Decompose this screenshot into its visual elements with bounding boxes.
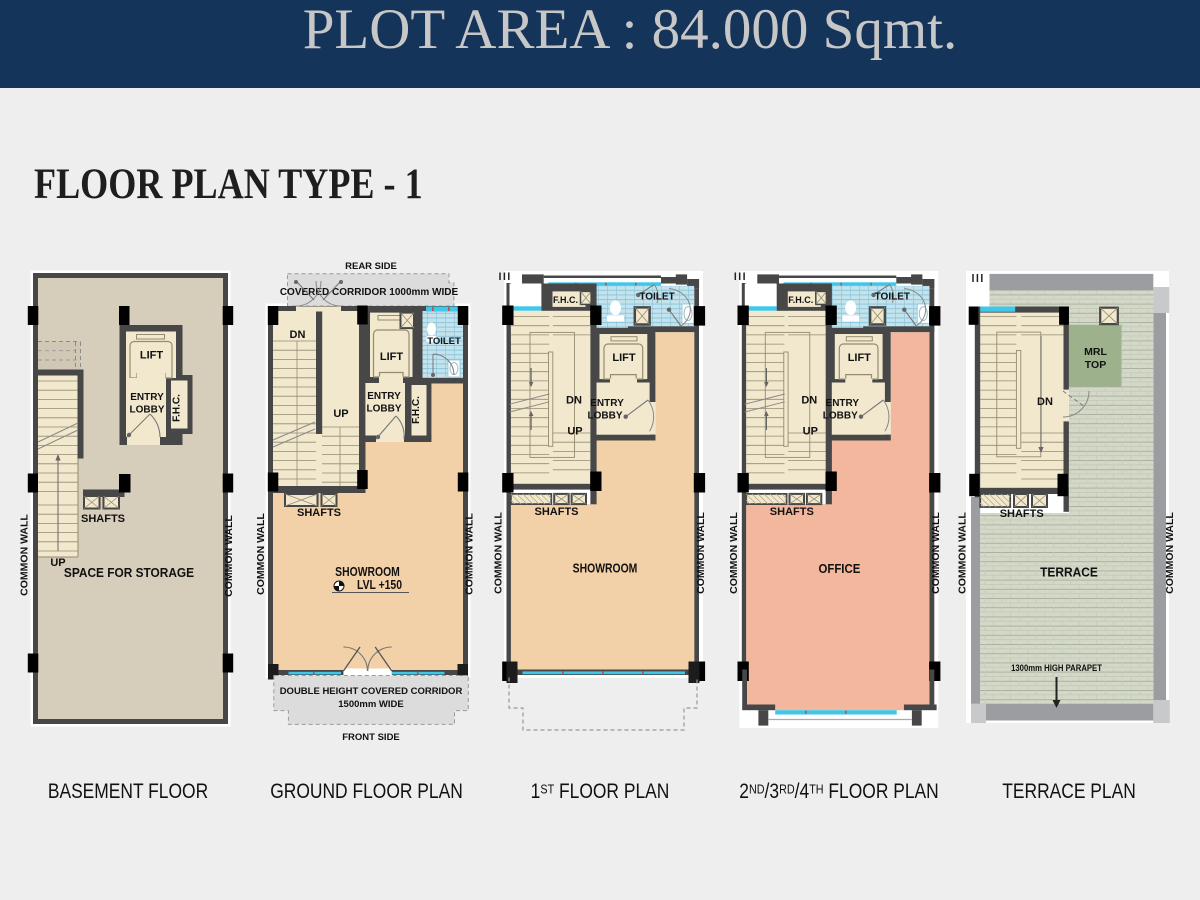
svg-text:COMMON WALL: COMMON WALL [728,512,740,594]
svg-text:SHAFTS: SHAFTS [770,506,814,518]
svg-text:COMMON WALL: COMMON WALL [695,512,707,594]
svg-text:TOILET: TOILET [427,336,461,347]
svg-text:LIFT: LIFT [380,351,403,363]
svg-text:LIFT: LIFT [612,352,635,364]
svg-text:LIFT: LIFT [140,350,163,362]
svg-text:1ST FLOOR PLAN: 1ST FLOOR PLAN [531,781,670,804]
svg-text:LIFT: LIFT [848,352,871,364]
svg-text:COMMON WALL: COMMON WALL [223,515,235,597]
svg-text:TERRACE: TERRACE [1040,565,1098,580]
svg-text:LOBBY: LOBBY [367,404,402,415]
svg-text:LOBBY: LOBBY [130,405,165,416]
svg-text:OFFICE: OFFICE [818,561,860,576]
svg-text:DOUBLE HEIGHT COVERED CORRIDOR: DOUBLE HEIGHT COVERED CORRIDOR [280,686,463,697]
svg-text:F.H.C.: F.H.C. [788,295,813,305]
svg-text:UP: UP [567,426,582,438]
svg-text:DN: DN [566,395,582,407]
svg-text:COMMON WALL: COMMON WALL [19,514,31,596]
svg-text:SHAFTS: SHAFTS [535,506,579,518]
svg-text:MRL: MRL [1084,346,1107,358]
svg-text:LVL +150: LVL +150 [357,578,402,592]
svg-text:FRONT SIDE: FRONT SIDE [342,732,400,743]
svg-text:UP: UP [803,426,818,438]
svg-text:GROUND FLOOR PLAN: GROUND FLOOR PLAN [270,781,463,804]
svg-text:COMMON WALL: COMMON WALL [255,513,267,595]
svg-text:LOBBY: LOBBY [588,411,623,422]
svg-text:TOP: TOP [1085,359,1106,371]
svg-text:TOILET: TOILET [875,292,910,303]
svg-text:ENTRY: ENTRY [367,391,401,402]
svg-text:COMMON WALL: COMMON WALL [463,513,475,595]
svg-text:COMMON WALL: COMMON WALL [1164,512,1176,594]
svg-text:BASEMENT FLOOR: BASEMENT FLOOR [48,781,208,804]
svg-text:TOILET: TOILET [639,292,674,303]
svg-text:SPACE FOR STORAGE: SPACE FOR STORAGE [64,565,194,580]
svg-text:LOBBY: LOBBY [823,411,858,422]
svg-text:ENTRY: ENTRY [130,392,164,403]
svg-text:UP: UP [333,408,348,420]
svg-text:DN: DN [801,395,817,407]
svg-text:COMMON WALL: COMMON WALL [493,512,505,594]
svg-text:F.H.C.: F.H.C. [411,396,422,424]
svg-text:ENTRY: ENTRY [590,398,624,409]
svg-text:TERRACE PLAN: TERRACE PLAN [1002,781,1136,804]
svg-text:1300mm HIGH PARAPET: 1300mm HIGH PARAPET [1011,664,1102,674]
svg-text:F.H.C.: F.H.C. [553,295,578,305]
svg-text:SHAFTS: SHAFTS [297,507,341,519]
svg-text:F.H.C.: F.H.C. [172,394,183,422]
svg-text:REAR SIDE: REAR SIDE [345,261,397,272]
svg-text:COMMON WALL: COMMON WALL [956,512,968,594]
svg-text:SHAFTS: SHAFTS [81,513,125,525]
svg-text:DN: DN [1037,396,1053,408]
svg-text:1500mm WIDE: 1500mm WIDE [338,699,403,710]
svg-text:2ND/3RD/4TH FLOOR PLAN: 2ND/3RD/4TH FLOOR PLAN [739,781,938,804]
svg-text:SHOWROOM: SHOWROOM [573,561,638,575]
svg-text:DN: DN [290,329,306,341]
svg-text:SHAFTS: SHAFTS [1000,508,1044,520]
svg-text:ENTRY: ENTRY [826,398,860,409]
svg-text:COMMON WALL: COMMON WALL [930,512,942,594]
